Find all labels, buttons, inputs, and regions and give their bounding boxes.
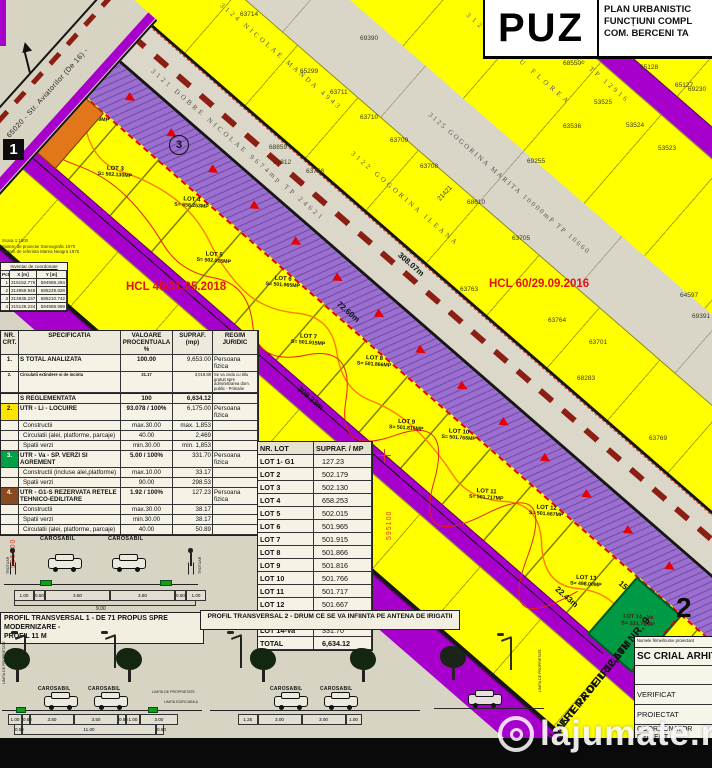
street-lamp-icon bbox=[510, 638, 512, 670]
bilant-row: Constructii (incluse alei,platforme)max.… bbox=[1, 468, 258, 478]
row-number: 4. bbox=[1, 488, 19, 505]
column-header: SUPRAF. / MP bbox=[314, 442, 372, 455]
car-icon bbox=[112, 558, 146, 569]
surface-cell: min. 1,853 bbox=[173, 441, 213, 451]
puz-plan-sheet: 3121 DOBRE NICOLAE 9674mp TP 246213124 N… bbox=[0, 0, 712, 768]
specification-cell: Spatii verzi bbox=[19, 478, 121, 488]
lot-area-cell: 502.179 bbox=[314, 468, 372, 481]
row-number: 1. bbox=[1, 355, 19, 372]
tree-icon bbox=[250, 648, 276, 682]
lot-name-cell: LOT 11 bbox=[258, 585, 314, 598]
row-number bbox=[1, 393, 19, 404]
dimension-value: 0.50 bbox=[156, 724, 164, 735]
car-icon bbox=[94, 696, 128, 707]
limita-proprietate-label: LIMITA DE PROPRIETATE bbox=[152, 690, 195, 694]
sub-dimension-row: 0.5011.000.50 bbox=[14, 724, 164, 735]
bilant-row: Circulatii (alei, platforme, parcaje)40.… bbox=[1, 431, 258, 441]
column-header: SPECIFICATIA bbox=[19, 331, 121, 355]
scale-note-line: Sistem de referinta Marea Neagra 1975 bbox=[2, 249, 97, 255]
surface-cell: 38.17 bbox=[173, 505, 213, 515]
tree-trunk bbox=[16, 670, 19, 682]
tree-canopy bbox=[440, 646, 466, 668]
bilant-row: Spatii verzimin.30.0038.17 bbox=[1, 515, 258, 525]
trotuar-label: TROTUAR bbox=[6, 557, 10, 574]
dimension-row: 1.253.003.001.00 bbox=[238, 714, 362, 725]
bilant-row: Spatii verzimin.30.00min. 1,853 bbox=[1, 441, 258, 451]
green-strip bbox=[16, 707, 26, 713]
specification-cell: UTR - G1-S REZERVATA RETELE TEHNICO-EDIL… bbox=[19, 488, 121, 505]
zone-marker-3: 3 bbox=[169, 135, 189, 155]
lot-name-cell: LOT 8 bbox=[258, 546, 314, 559]
scale-notes: Scara 1:1000Sistem de proiectie Stereogr… bbox=[2, 238, 97, 255]
percent-cell: max.30.00 bbox=[121, 505, 173, 515]
percent-cell: 100 bbox=[121, 393, 173, 404]
lot-name-cell: LOT 4 bbox=[258, 494, 314, 507]
dimension-value: 1.00 bbox=[14, 590, 34, 601]
legal-regime-cell: Persoana fizica bbox=[213, 404, 258, 421]
lot-name-cell: LOT 5 bbox=[258, 507, 314, 520]
limita-proprietate-label: LIMITA DE PROPRIETATE bbox=[2, 641, 6, 684]
tree-icon bbox=[116, 648, 142, 682]
verificat-row: VERIFICAT bbox=[635, 685, 712, 705]
car-icon bbox=[44, 696, 78, 707]
bilant-row: 2.UTR - Li - LOCUIRE93.078 / 100%6,175.0… bbox=[1, 404, 258, 421]
lot-name-cell: LOT 6 bbox=[258, 520, 314, 533]
row-number bbox=[1, 505, 19, 515]
table-row: 2314959.948595229.828 bbox=[1, 287, 67, 295]
percent-cell: 100.00 bbox=[121, 355, 173, 372]
coord-cell: 315128.234 bbox=[10, 303, 37, 311]
green-strip bbox=[148, 707, 158, 713]
lot-name-cell: LOT 1- G1 bbox=[258, 455, 314, 468]
percent-cell: max.10.00 bbox=[121, 468, 173, 478]
percent-cell: min.30.00 bbox=[121, 515, 173, 525]
percent-cell: 93.078 / 100% bbox=[121, 404, 173, 421]
specification-cell: S TOTAL ANALIZATA bbox=[19, 355, 121, 372]
territorial-balance-table: NR. CRT.SPECIFICATIAVALOARE PROCENTUALA … bbox=[0, 330, 259, 536]
legal-regime-cell bbox=[213, 525, 258, 535]
lot-table-row: LOT 10501.766 bbox=[258, 572, 372, 585]
coord-cell: 594968.999 bbox=[37, 303, 67, 311]
zone-marker-1: 1 bbox=[3, 139, 24, 160]
surface-cell: 2,469 bbox=[173, 431, 213, 441]
bilant-row: Constructiimax.30.00max. 1,853 bbox=[1, 421, 258, 431]
dimension-value: 1.00 bbox=[346, 714, 362, 725]
carosabil-label: CAROSABIL bbox=[108, 536, 143, 542]
lot-area-cell: 658.253 bbox=[314, 494, 372, 507]
tree-canopy bbox=[350, 648, 376, 670]
lot-area-cell: 502.015 bbox=[314, 507, 372, 520]
coord-table-title: Inventar de coordonate bbox=[1, 263, 67, 271]
column-header: REGIM JURIDIC bbox=[213, 331, 258, 355]
lot-table-row: LOT 6501.965 bbox=[258, 520, 372, 533]
surface-cell: max. 1,853 bbox=[173, 421, 213, 431]
lot-area-cell: 501.717 bbox=[314, 585, 372, 598]
row-number bbox=[1, 515, 19, 525]
puz-title-line: PLAN URBANISTIC bbox=[604, 4, 692, 16]
tree-icon bbox=[350, 648, 376, 682]
lot-table-row: LOT 3502.130 bbox=[258, 481, 372, 494]
tree-trunk bbox=[362, 670, 365, 682]
bilant-header-row: NR. CRT.SPECIFICATIAVALOARE PROCENTUALA … bbox=[1, 331, 258, 355]
coord-cell: 3 bbox=[1, 295, 10, 303]
legal-regime-cell bbox=[213, 468, 258, 478]
bilant-row: 2.Circulatii extindere si de incinta31.1… bbox=[1, 372, 258, 393]
surface-cell: 33.17 bbox=[173, 468, 213, 478]
dimension-value: 11.00 bbox=[22, 724, 156, 735]
carosabil-label: CAROSABIL bbox=[40, 536, 75, 542]
coord-cell: 595210.742 bbox=[37, 295, 67, 303]
legal-regime-cell bbox=[213, 421, 258, 431]
row-number: 2. bbox=[1, 404, 19, 421]
tree-icon bbox=[440, 646, 466, 680]
bilant-row: 3.UTR - Va - SP. VERZI SI AGREMENT5.00 /… bbox=[1, 451, 258, 468]
watermark-text: lajumate.ro bbox=[540, 714, 712, 754]
specification-cell: Constructii bbox=[19, 505, 121, 515]
table-row: 1315152.776594968.294 bbox=[1, 279, 67, 287]
surface-cell: 6,175.00 bbox=[173, 404, 213, 421]
specification-cell: Spatii verzi bbox=[19, 441, 121, 451]
legal-regime-cell bbox=[213, 478, 258, 488]
legal-regime-cell bbox=[213, 505, 258, 515]
specification-cell: UTR - Li - LOCUIRE bbox=[19, 404, 121, 421]
dimension-row: 1.000.503.503.500.501.00 bbox=[14, 590, 206, 601]
legal-regime-cell: Persoana fizica bbox=[213, 355, 258, 372]
specification-cell: Constructii (incluse alei,platforme) bbox=[19, 468, 121, 478]
row-number: 3. bbox=[1, 451, 19, 468]
coord-cell: 594968.294 bbox=[37, 279, 67, 287]
lot-name-cell: LOT 7 bbox=[258, 533, 314, 546]
specification-cell: Circulatii extindere si de incinta bbox=[19, 372, 121, 393]
percent-cell: 31.17 bbox=[121, 372, 173, 393]
table-row: 4315128.234594968.999 bbox=[1, 303, 67, 311]
lot-name-cell: LOT 2 bbox=[258, 468, 314, 481]
bilant-row: S REGLEMENTATA1006,634.12 bbox=[1, 393, 258, 404]
bilant-row: Constructiimax.30.0038.17 bbox=[1, 505, 258, 515]
lot-table-row: LOT 11501.717 bbox=[258, 585, 372, 598]
surface-cell: 331.70 bbox=[173, 451, 213, 468]
tree-trunk bbox=[262, 670, 265, 682]
puz-logo: PUZ bbox=[485, 0, 599, 56]
edge-purple-sliver bbox=[0, 0, 6, 46]
pedestrian-icon bbox=[186, 548, 194, 566]
percent-cell: 5.00 / 100% bbox=[121, 451, 173, 468]
specification-cell: Circulatii (alei, platforme, parcaje) bbox=[19, 431, 121, 441]
surface-cell: 127.23 bbox=[173, 488, 213, 505]
lot-area-cell: 501.866 bbox=[314, 546, 372, 559]
dimension-value: 0.50 bbox=[14, 724, 22, 735]
lot-name-cell: LOT 9 bbox=[258, 559, 314, 572]
coord-cell: 2 bbox=[1, 287, 10, 295]
percent-cell: 90.00 bbox=[121, 478, 173, 488]
ground-line bbox=[210, 710, 420, 711]
column-header: X [m] bbox=[10, 271, 37, 279]
legal-regime-cell: Persoana fizica bbox=[213, 488, 258, 505]
lot-area-cell: 502.130 bbox=[314, 481, 372, 494]
coord-cell: 4 bbox=[1, 303, 10, 311]
bilant-row: 4.UTR - G1-S REZERVATA RETELE TEHNICO-ED… bbox=[1, 488, 258, 505]
tree-trunk bbox=[452, 668, 455, 680]
coordinate-table: Inventar de coordonatePct.X [m]Y [m]1315… bbox=[0, 262, 68, 312]
dimension-value: 3.50 bbox=[110, 590, 175, 601]
coord-cell: 1 bbox=[1, 279, 10, 287]
coord-cell: 315152.776 bbox=[10, 279, 37, 287]
surface-cell: 3,018.88 bbox=[173, 372, 213, 393]
surface-cell: 6,634.12 bbox=[173, 393, 213, 404]
legal-regime-cell bbox=[213, 441, 258, 451]
legal-regime-cell: Persoana fizica bbox=[213, 451, 258, 468]
row-number bbox=[1, 421, 19, 431]
percent-cell: 40.00 bbox=[121, 431, 173, 441]
dimension-value: 3.50 bbox=[45, 590, 110, 601]
percent-cell: min.30.00 bbox=[121, 441, 173, 451]
row-number: 2. bbox=[1, 372, 19, 393]
lot-table-row: LOT 9501.816 bbox=[258, 559, 372, 572]
dimension-value: 0.50 bbox=[34, 590, 45, 601]
coord-cell: 314959.948 bbox=[10, 287, 37, 295]
camera-icon bbox=[498, 716, 534, 752]
lot-area-cell: 501.915 bbox=[314, 533, 372, 546]
firm-name: SC CRIAL ARHITECT bbox=[635, 648, 712, 666]
column-header: NR. LOT bbox=[258, 442, 314, 455]
bilant-row: 1.S TOTAL ANALIZATA100.009,653.00Persoan… bbox=[1, 355, 258, 372]
lot-table-row: LOT 2502.179 bbox=[258, 468, 372, 481]
legal-regime-cell bbox=[213, 431, 258, 441]
profile-3-drawing: CAROSABILCAROSABIL1.253.003.001.00 bbox=[210, 634, 428, 736]
lot-table-row: LOT 1- G1127.23 bbox=[258, 455, 372, 468]
lot-name-cell: LOT 3 bbox=[258, 481, 314, 494]
column-header: Pct. bbox=[1, 271, 10, 279]
car-icon bbox=[48, 558, 82, 569]
dimension-value: 1.00 bbox=[186, 590, 206, 601]
dimension-value: 3.00 bbox=[258, 714, 302, 725]
column-header: Y [m] bbox=[37, 271, 67, 279]
dimension-value: 1.25 bbox=[238, 714, 258, 725]
blank-row bbox=[635, 666, 712, 685]
firm-note: Numele firmei/nume proiectant bbox=[635, 637, 712, 648]
profile-2-drawing: CAROSABILCAROSABIL1.000.503.503.500.501.… bbox=[2, 634, 202, 736]
percent-cell: 1.92 / 100% bbox=[121, 488, 173, 505]
row-number bbox=[1, 441, 19, 451]
column-header: SUPRAF. (mp) bbox=[173, 331, 213, 355]
specification-cell: Spatii verzi bbox=[19, 515, 121, 525]
dimension-value: 3.00 bbox=[302, 714, 346, 725]
tree-icon bbox=[4, 648, 30, 682]
lot-name-cell: LOT 10 bbox=[258, 572, 314, 585]
bilant-row: Spatii verzi90.00298.53 bbox=[1, 478, 258, 488]
street-lamp-icon bbox=[240, 636, 242, 668]
surface-cell: 9,653.00 bbox=[173, 355, 213, 372]
car-icon bbox=[468, 694, 502, 705]
ground-line bbox=[2, 710, 202, 711]
surface-cell: 298.53 bbox=[173, 478, 213, 488]
lot-table-row: LOT 8501.866 bbox=[258, 546, 372, 559]
tree-trunk bbox=[128, 670, 131, 682]
coord-cell: 595229.828 bbox=[37, 287, 67, 295]
ground-line bbox=[434, 708, 544, 709]
tree-canopy bbox=[116, 648, 142, 670]
lot-table-row: LOT 5502.015 bbox=[258, 507, 372, 520]
column-header: NR. CRT. bbox=[1, 331, 19, 355]
row-number bbox=[1, 431, 19, 441]
lot-area-cell: 501.766 bbox=[314, 572, 372, 585]
lot-table-row: LOT 4658.253 bbox=[258, 494, 372, 507]
legal-regime-cell bbox=[213, 393, 258, 404]
puz-title-lines: PLAN URBANISTICFUNCȚIUNI COMPLCOM. BERCE… bbox=[599, 0, 692, 56]
lot-table-row: LOT 7501.915 bbox=[258, 533, 372, 546]
specification-cell: UTR - Va - SP. VERZI SI AGREMENT bbox=[19, 451, 121, 468]
percent-cell: max.30.00 bbox=[121, 421, 173, 431]
row-number bbox=[1, 478, 19, 488]
puz-title-line: FUNCȚIUNI COMPL bbox=[604, 16, 692, 28]
zone-marker-2: 2 bbox=[676, 592, 692, 624]
specification-cell: S REGLEMENTATA bbox=[19, 393, 121, 404]
puz-title-line: COM. BERCENI TA bbox=[604, 28, 692, 40]
lot-area-cell: 501.816 bbox=[314, 559, 372, 572]
profile-1-drawing: CAROSABILCAROSABILTROTUARTROTUAR1.000.50… bbox=[4, 530, 198, 614]
row-number bbox=[1, 468, 19, 478]
lot-area-cell: 127.23 bbox=[314, 455, 372, 468]
legal-regime-cell bbox=[213, 515, 258, 525]
legal-regime-cell: Se va ceda cu titlu gratuit spre adminis… bbox=[213, 372, 258, 393]
tree-canopy bbox=[4, 648, 30, 670]
specification-cell: Constructii bbox=[19, 421, 121, 431]
profile-2-title: PROFIL TRANSVERSAL 2 - DRUM CE SE VA INF… bbox=[200, 610, 460, 630]
green-strip bbox=[40, 580, 52, 586]
limita-edificabila-label: LIMITA EDIFICABILA bbox=[164, 700, 198, 704]
dimension-value: 0.50 bbox=[175, 590, 186, 601]
table-row: 3314935.237595210.742 bbox=[1, 295, 67, 303]
coord-table-header: Pct.X [m]Y [m] bbox=[1, 271, 67, 279]
surface-cell: 38.17 bbox=[173, 515, 213, 525]
lot-area-cell: 501.965 bbox=[314, 520, 372, 533]
limita-proprietate-label: LIMITA DE PROPRIETATE bbox=[538, 649, 542, 692]
coord-cell: 314935.237 bbox=[10, 295, 37, 303]
trotuar-label: TROTUAR bbox=[198, 557, 202, 574]
puz-title-box: PUZ PLAN URBANISTICFUNCȚIUNI COMPLCOM. B… bbox=[483, 0, 712, 59]
car-icon bbox=[274, 696, 308, 707]
watermark: lajumate.ro bbox=[498, 714, 712, 754]
car-icon bbox=[324, 696, 358, 707]
green-strip bbox=[160, 580, 172, 586]
lot-table-header: NR. LOTSUPRAF. / MP bbox=[258, 442, 372, 455]
tree-canopy bbox=[250, 648, 276, 670]
column-header: VALOARE PROCENTUALA % bbox=[121, 331, 173, 355]
